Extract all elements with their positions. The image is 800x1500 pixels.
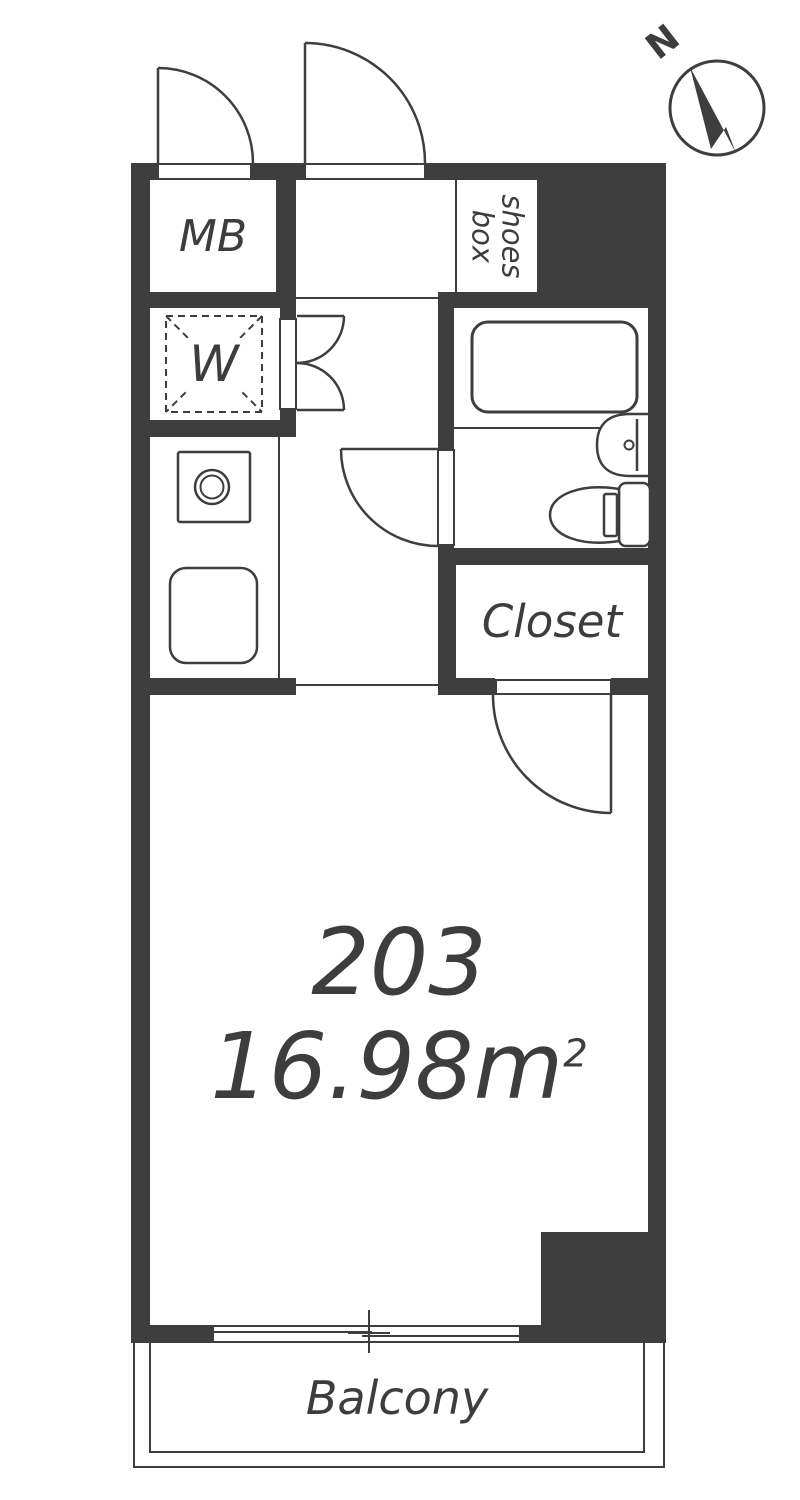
unit-area-exponent: 2 — [563, 1031, 588, 1076]
shoes-box-line1: shoes — [497, 194, 527, 278]
washer-folding-door-icon — [297, 316, 344, 410]
unit-info-label: 203 16.98m2 — [150, 900, 648, 1130]
mb-door-swing — [158, 68, 253, 163]
compass-north-icon — [670, 61, 764, 155]
entrance-door-swing — [305, 43, 425, 163]
bathroom-door-swing — [341, 449, 438, 546]
room-label-washer: W — [166, 316, 262, 412]
toilet-icon — [550, 483, 650, 546]
shoes-box-line2: box — [467, 194, 497, 278]
floor-plan: N MB W shoes box Closet 203 16.98m2 Balc… — [0, 0, 800, 1500]
kitchen-sink-icon — [170, 568, 257, 663]
unit-area: 16.98m2 — [210, 1015, 588, 1119]
unit-number: 203 — [311, 911, 487, 1015]
stove-icon — [178, 452, 250, 522]
room-label-closet: Closet — [456, 565, 648, 678]
washbasin-icon — [597, 414, 648, 476]
room-label-mb: MB — [150, 182, 276, 292]
room-label-shoes-box: shoes box — [457, 180, 537, 292]
bathtub-icon — [472, 322, 637, 412]
room-door-swing — [493, 695, 611, 813]
room-label-balcony: Balcony — [149, 1343, 645, 1453]
